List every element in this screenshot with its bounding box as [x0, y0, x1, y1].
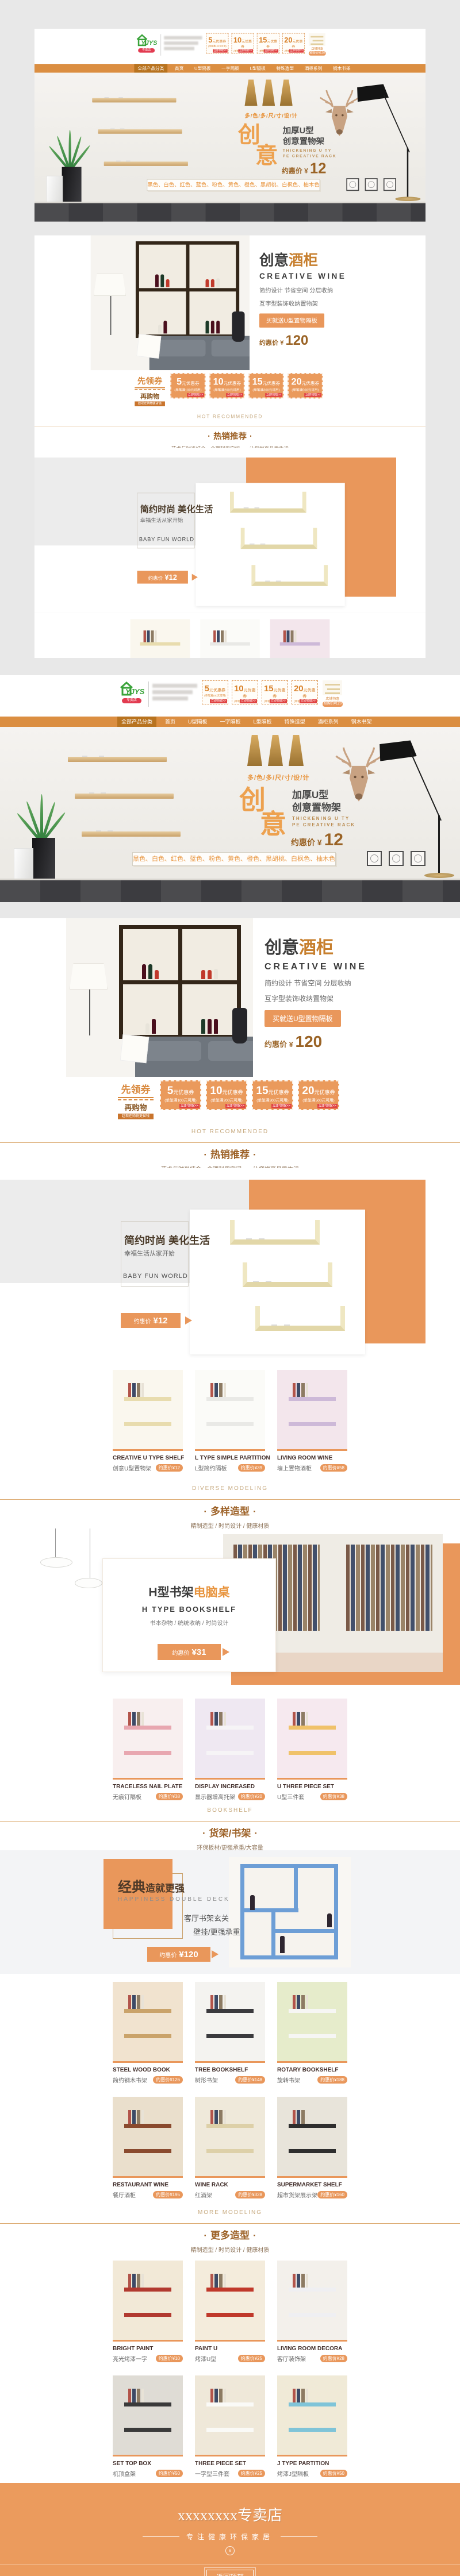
strip-coupon-10[interactable]: 10元优惠券 (单笔满200元可用) 立即领取>>	[209, 373, 244, 398]
strip-coupon-5[interactable]: 5元优惠券 (单笔满100元可用) 立即领取>>	[170, 373, 205, 398]
nav-l-shelf[interactable]: L型隔板	[254, 717, 272, 727]
nav-steel-wood[interactable]: 钢木书架	[351, 717, 372, 727]
nav-u-shelf[interactable]: U型隔板	[194, 64, 210, 72]
classic-price-button[interactable]: 约惠价¥120	[147, 1947, 210, 1962]
feature-product-card	[196, 483, 345, 606]
coupon-lead: 先领券 再购物 趁现在购物更省钱	[118, 1081, 154, 1119]
heading-bookshelf: BOOKSHELF 货架/书架 环保板材/更强承重/大容量	[0, 1801, 460, 1850]
product-card[interactable]: CREATIVE U TYPE SHELF 创意U型置物架约惠价¥12	[113, 1370, 183, 1480]
classic-title: 经典造就更强	[118, 1876, 185, 1896]
banner-big-char-2: 意	[260, 811, 286, 837]
hero-banner: 多/色/多/尺/寸/设/计 创 意 加厚U型创意置物架 THICKENING U…	[0, 727, 460, 902]
svg-text:YJYS: YJYS	[125, 687, 145, 696]
product-card[interactable]: ROTARY BOOKSHELF 旋转书架约惠价¥188	[277, 1982, 347, 2089]
main-nav: 全部产品分类 首页 U型隔板 一字隔板 L型隔板 特殊造型 酒柜系列 钢木书架	[0, 717, 460, 727]
price-badge: 约惠价¥39	[238, 1464, 265, 1472]
price-badge: 约惠价¥20	[238, 1793, 265, 1800]
section-gap	[0, 902, 460, 918]
arrow-icon	[192, 574, 198, 581]
product-card[interactable]: CREATIVE U TYPE SHELF 创意U型置物架约惠价¥12	[131, 619, 190, 658]
nav-special-shape[interactable]: 特殊造型	[285, 717, 305, 727]
floor-lamp-icon	[378, 737, 453, 881]
classic-line-1: 客厅书架玄关	[184, 1912, 229, 1923]
product-row-1: CREATIVE U TYPE SHELF 创意U型置物架约惠价¥12 L TY…	[0, 1362, 460, 1480]
pendant-lamp-icon	[268, 735, 283, 766]
product-card[interactable]: L TYPE SIMPLE PARTITION L型简约隔板约惠价¥39	[195, 1370, 265, 1480]
product-card[interactable]: TREE BOOKSHELF 树形书架约惠价¥148	[195, 1982, 265, 2089]
floor-lamp-icon	[356, 82, 420, 204]
pendant-lamp-icon	[262, 79, 275, 106]
header-coupon-20[interactable]: 20元优惠券 (单笔满500元可用) 立即领取>>	[292, 680, 318, 704]
coupon-lead: 先领券 再购物 趁现在购物更省钱	[135, 374, 165, 406]
wood-floor-decor	[0, 879, 460, 902]
wine-feature-1: 简约设计 节省空间 分层收纳	[264, 978, 367, 988]
product-image	[200, 619, 260, 658]
feature-simple-fashion: 简约时尚 美化生活 幸福生活从家开始 BABY FUN WORLD 约惠价¥12	[34, 448, 425, 612]
product-row-5: BRIGHT PAINT 亮光烤漆一字约惠价¥10 PAINT U 烤漆U型约惠…	[0, 2252, 460, 2367]
product-card[interactable]: LIVING ROOM WINE 墙上置物酒柜约惠价¥58	[270, 619, 330, 658]
plant-decor	[40, 132, 103, 205]
product-image	[131, 619, 190, 658]
wine-section: 创意酒柜 CREATIVE WINE 简约设计 节省空间 分层收纳 互字型装饰收…	[0, 918, 460, 1077]
wine-feature-2: 互字型装饰收纳置物架	[264, 994, 367, 1003]
nav-straight-shelf[interactable]: 一字隔板	[221, 64, 239, 72]
nav-all-categories[interactable]: 全部产品分类	[117, 717, 156, 727]
product-row-4: RESTAURANT WINE 餐厅酒柜约惠价¥195 WINE RACK 红酒…	[0, 2089, 460, 2204]
h-bookshelf-card: H型书架电脑桌 H TYPE BOOKSHELF 书本杂物 / 统统收纳 / 时…	[102, 1558, 276, 1672]
price-badge: 约惠价¥50	[320, 2470, 347, 2477]
price-badge: 约惠价¥50	[156, 2470, 183, 2477]
promo-caption: 店铺特惠	[323, 696, 343, 701]
product-card[interactable]: LIVING ROOM DECORA 客厅装饰架约惠价¥28	[277, 2261, 347, 2367]
arrow-icon	[223, 1648, 229, 1656]
banner-shelf-decor	[68, 738, 167, 762]
product-image	[113, 1699, 183, 1780]
feature-price-button[interactable]: 约惠价¥12	[137, 571, 188, 584]
price-badge: 约惠价¥195	[153, 2191, 183, 2198]
store-logo[interactable]: YJYS 专卖店	[134, 33, 159, 53]
strip-coupon-20[interactable]: 20元优惠券 (单笔满500元可用) 立即领取>>	[287, 373, 323, 398]
feature-product-card	[190, 1210, 365, 1354]
product-card[interactable]: PAINT U 烤漆U型约惠价¥25	[195, 2261, 265, 2367]
hero-banner: 多/色/多/尺/寸/设/计 创 意 加厚U型创意置物架 THICKENING U…	[34, 73, 425, 222]
banner-shelf-decor	[82, 813, 181, 837]
price-badge: 约惠价¥38	[156, 1793, 183, 1800]
product-image	[195, 2375, 265, 2456]
site-header: YJYS 专卖店 5元优惠券 (单笔满100元可用) 立即领取>> 10元优惠券…	[0, 675, 460, 717]
pendant-lamp-icon	[247, 735, 262, 766]
divider	[148, 681, 149, 707]
logo-tag: 专卖店	[122, 698, 141, 703]
plant-decor	[6, 796, 80, 883]
section-gap	[34, 222, 425, 236]
product-image	[113, 2375, 183, 2456]
price-badge: 约惠价¥328	[235, 2191, 265, 2198]
feature-price-button[interactable]: 约惠价¥12	[121, 1313, 181, 1328]
banner-shelf-decor	[98, 114, 182, 134]
product-row-3: STEEL WOOD BOOK 简约钢木书架约惠价¥126 TREE BOOKS…	[0, 1974, 460, 2089]
product-image	[277, 1982, 347, 2063]
page-preview-copy: YJYS 专卖店 5元优惠券 (单笔满100元可用) 立即领取>> 10元优惠券…	[34, 29, 425, 658]
product-card[interactable]: J TYPE PARTITION 烤漆J型隔板约惠价¥50	[277, 2375, 347, 2483]
product-image	[195, 2097, 265, 2178]
store-name: xxxxxxxx专卖店	[0, 2483, 460, 2525]
price-badge: 约惠价¥28	[320, 2355, 347, 2362]
product-image	[113, 1982, 183, 2063]
product-card[interactable]: RESTAURANT WINE 餐厅酒柜约惠价¥195	[113, 2097, 183, 2204]
banner-multi-text: 多/色/多/尺/寸/设/计	[245, 112, 298, 120]
wine-title-en: CREATIVE WINE	[259, 272, 346, 281]
header-coupon-5[interactable]: 5元优惠券 (单笔满100元可用) 立即领取>>	[202, 680, 228, 704]
product-row-1: CREATIVE U TYPE SHELF 创意U型置物架约惠价¥12 L TY…	[34, 613, 425, 658]
nav-wine-series[interactable]: 酒柜系列	[318, 717, 339, 727]
wine-gift-button[interactable]: 买就送U型置物隔板	[259, 314, 324, 328]
page-footer: xxxxxxxx专卖店 专注健康环保家居 返回顶部	[0, 2483, 460, 2576]
strip-coupon-15[interactable]: 15元优惠券 (单笔满300元可用) 立即领取>>	[248, 373, 283, 398]
wine-price: 约惠价 ¥ 120	[259, 333, 346, 348]
feature-title: 简约时尚 美化生活	[140, 503, 213, 515]
header-coupons: 5元优惠券 (单笔满100元可用) 立即领取>> 10元优惠券 (单笔满200元…	[206, 33, 305, 54]
site-header: YJYS 专卖店 5元优惠券 (单笔满100元可用) 立即领取>> 10元优惠券…	[34, 29, 425, 64]
product-card[interactable]: STEEL WOOD BOOK 简约钢木书架约惠价¥126	[113, 1982, 183, 2089]
classic-title-en: HAPPINESS DOUBLE DECK	[118, 1896, 230, 1903]
feature-subtitle: 幸福生活从家开始	[124, 1249, 175, 1258]
product-card[interactable]: TRACELESS NAIL PLATE 无痕钉隔板约惠价¥38	[113, 1699, 183, 1801]
h-price-button[interactable]: 约惠价¥31	[158, 1644, 221, 1660]
price-badge: 约惠价¥10	[156, 2355, 183, 2362]
wine-title: 创意酒柜	[259, 248, 346, 269]
price-badge: 约惠价¥25	[238, 2355, 265, 2362]
nav-all-categories[interactable]: 全部产品分类	[134, 64, 167, 72]
product-card[interactable]: U THREE PIECE SET U型三件套约惠价¥38	[277, 1699, 347, 1801]
nav-home[interactable]: 首页	[165, 717, 175, 727]
house-logo-icon: YJYS	[117, 680, 147, 698]
product-image	[277, 2261, 347, 2342]
price-badge: 约惠价¥38	[320, 1793, 347, 1800]
feature-title: 简约时尚 美化生活	[124, 1233, 210, 1247]
heading-hot-recommended: HOT RECOMMENDED 热销推荐 艺术与时尚结合，合理利用空间——让您悦…	[0, 1123, 460, 1168]
product-image	[270, 619, 330, 658]
nav-steel-wood[interactable]: 钢木书架	[333, 64, 351, 72]
nav-wine-series[interactable]: 酒柜系列	[305, 64, 323, 72]
product-image	[113, 2097, 183, 2178]
wine-block: 创意酒柜 CREATIVE WINE 简约设计 节省空间 分层收纳 互字型装饰收…	[34, 236, 425, 448]
wine-title-en: CREATIVE WINE	[264, 962, 367, 972]
banner-big-char-2: 意	[255, 144, 278, 167]
product-image	[277, 1699, 347, 1780]
store-logo[interactable]: YJYS 专卖店	[117, 680, 147, 703]
feature-h-bookshelf: H型书架电脑桌 H TYPE BOOKSHELF 书本杂物 / 统统收纳 / 时…	[0, 1528, 460, 1695]
wood-floor-decor	[34, 202, 425, 222]
header-coupon-10[interactable]: 10元优惠券 (单笔满200元可用) 立即领取>>	[231, 33, 254, 54]
nav-l-shelf[interactable]: L型隔板	[250, 64, 265, 72]
wine-title: 创意酒柜	[264, 933, 367, 958]
house-logo-icon: YJYS	[134, 33, 159, 48]
banner-subtitle-en: THICKENING U TYPE CREATIVE RACK	[292, 815, 355, 828]
product-card[interactable]: WINE RACK 红酒架约惠价¥328	[195, 2097, 265, 2204]
product-image	[113, 1370, 183, 1451]
product-card[interactable]: L TYPE SIMPLE PARTITION L型简约隔板约惠价¥39	[200, 619, 260, 658]
classic-line-2: 壁挂/更强承重	[193, 1926, 240, 1937]
wine-feature-2: 互字型装饰收纳置物架	[259, 299, 346, 307]
product-image	[195, 1982, 265, 2063]
coupon-strip: 先领券 再购物 趁现在购物更省钱 5元优惠券 (单笔满100元可用) 立即领取>…	[34, 370, 425, 409]
product-row-6: SET TOP BOX 机顶盒架约惠价¥50 THREE PIECE SET 一…	[0, 2367, 460, 2483]
promo-price: 抢购价¥120	[309, 51, 326, 56]
promo-caption: 店铺特惠	[309, 47, 326, 51]
divider	[160, 34, 161, 55]
product-card[interactable]: BRIGHT PAINT 亮光烤漆一字约惠价¥10	[113, 2261, 183, 2367]
banner-multi-text: 多/色/多/尺/寸/设/计	[247, 773, 309, 782]
design-canvas: YJYS 专卖店 5元优惠券 (单笔满100元可用) 立即领取>> 10元优惠券…	[0, 0, 460, 2576]
header-coupon-15[interactable]: 15元优惠券 (单笔满300元可用) 立即领取>>	[257, 33, 279, 54]
header-coupon-10[interactable]: 10元优惠券 (单笔满200元可用) 立即领取>>	[232, 680, 258, 704]
banner-price: 约惠价 ¥ 12	[291, 830, 343, 850]
feature-title-en: BABY FUN WORLD	[123, 1273, 188, 1280]
price-badge: 约惠价¥160	[317, 2191, 347, 2198]
promo-thumbnail	[323, 680, 342, 695]
price-badge: 约惠价¥12	[156, 1464, 183, 1472]
banner-colors-bar: 黑色、白色、红色、蓝色、粉色、黄色、橙色、黑胡桃、白枫色、柚木色	[132, 852, 336, 866]
feature-subtitle: 幸福生活从家开始	[140, 516, 183, 524]
feature-classic-quality: 经典造就更强 HAPPINESS DOUBLE DECK 客厅书架玄关 壁挂/更…	[0, 1850, 460, 1974]
banner-colors-bar: 黑色、白色、红色、蓝色、粉色、黄色、橙色、黑胡桃、白枫色、柚木色	[147, 179, 320, 191]
product-image	[195, 1699, 265, 1780]
promo-price: 抢购价¥120	[323, 702, 343, 707]
banner-shelf-decor	[104, 146, 188, 166]
wine-feature-1: 简约设计 节省空间 分层收纳	[259, 286, 346, 294]
main-nav: 全部产品分类 首页 U型隔板 一字隔板 L型隔板 特殊造型 酒柜系列 钢木书架	[34, 64, 425, 72]
feature-title-en: BABY FUN WORLD	[139, 537, 194, 542]
store-description-placeholder	[164, 33, 202, 52]
header-promo[interactable]: 店铺特惠 抢购价¥120	[323, 680, 343, 707]
header-coupon-15[interactable]: 15元优惠券 (单笔满300元可用) 立即领取>>	[262, 680, 288, 704]
header-coupon-5[interactable]: 5元优惠券 (单笔满100元可用) 立即领取>>	[206, 33, 228, 54]
product-card[interactable]: THREE PIECE SET 一字型三件套约惠价¥25	[195, 2375, 265, 2483]
nav-u-shelf[interactable]: U型隔板	[188, 717, 208, 727]
price-badge: 约惠价¥58	[320, 1464, 347, 1472]
nav-special-shape[interactable]: 特殊造型	[276, 64, 294, 72]
product-row-2: TRACELESS NAIL PLATE 无痕钉隔板约惠价¥38 DISPLAY…	[0, 1695, 460, 1801]
wine-block: 创意酒柜 CREATIVE WINE 简约设计 节省空间 分层收纳 互字型装饰收…	[0, 918, 460, 1168]
heading-diverse-modeling: DIVERSE MODELING 多样造型 精制造型 / 时尚设计 / 健康材质	[0, 1480, 460, 1528]
strip-coupon-15[interactable]: 15元优惠券 (单笔满300元可用) 立即领取>>	[252, 1080, 293, 1110]
wine-photo	[91, 236, 250, 371]
product-card[interactable]: DISPLAY INCREASED 显示器增高托架约惠价¥20	[195, 1699, 265, 1801]
product-image	[195, 1370, 265, 1451]
price-badge: 约惠价¥188	[317, 2076, 347, 2084]
pendant-lamp-icon	[40, 1528, 109, 1597]
pendant-lamp-icon	[289, 735, 304, 766]
wine-price: 约惠价 ¥ 120	[264, 1033, 367, 1051]
strip-coupon-5[interactable]: 5元优惠券 (单笔满100元可用) 立即领取>>	[160, 1080, 201, 1110]
store-slogan: 专注健康环保家居	[0, 2532, 460, 2542]
header-coupon-20[interactable]: 20元优惠券 (单笔满500元可用) 立即领取>>	[282, 33, 305, 54]
banner-subtitle-en: THICKENING U TYPE CREATIVE RACK	[283, 148, 337, 159]
price-badge: 约惠价¥126	[153, 2076, 183, 2084]
product-card[interactable]: SET TOP BOX 机顶盒架约惠价¥50	[113, 2375, 183, 2483]
page-full-copy: YJYS 专卖店 5元优惠券 (单笔满100元可用) 立即领取>> 10元优惠券…	[0, 675, 460, 2576]
strip-coupon-20[interactable]: 20元优惠券 (单笔满500元可用) 立即领取>>	[298, 1080, 339, 1110]
banner-shelf-decor	[75, 775, 174, 799]
nav-straight-shelf[interactable]: 一字隔板	[220, 717, 241, 727]
promo-thumbnail	[309, 33, 325, 46]
bulb-icon	[225, 2546, 235, 2555]
wine-gift-button[interactable]: 买就送U型置物隔板	[264, 1010, 341, 1027]
feature-simple-fashion: 简约时尚 美化生活 幸福生活从家开始 BABY FUN WORLD 约惠价¥12	[0, 1168, 460, 1362]
store-description-placeholder	[152, 680, 197, 703]
header-coupons: 5元优惠券 (单笔满100元可用) 立即领取>> 10元优惠券 (单笔满200元…	[202, 680, 318, 704]
wine-section: 创意酒柜 CREATIVE WINE 简约设计 节省空间 分层收纳 互字型装饰收…	[34, 236, 425, 371]
svg-text:YJYS: YJYS	[141, 40, 158, 47]
product-image	[277, 2375, 347, 2456]
strip-coupon-10[interactable]: 10元优惠券 (单笔满200元可用) 立即领取>>	[206, 1080, 247, 1110]
nav-home[interactable]: 首页	[175, 64, 183, 72]
heading-hot-recommended: HOT RECOMMENDED 热销推荐 艺术与时尚结合，合理利用空间——让您悦…	[34, 409, 425, 448]
wine-photo	[66, 918, 253, 1077]
product-card[interactable]: SUPERMARKET SHELF 超市货架展示架约惠价¥160	[277, 2097, 347, 2204]
product-image	[277, 1370, 347, 1451]
product-card[interactable]: LIVING ROOM WINE 墙上置物酒柜约惠价¥58	[277, 1370, 347, 1480]
product-image	[277, 2097, 347, 2178]
header-promo[interactable]: 店铺特惠 抢购价¥120	[309, 33, 326, 56]
heading-more-modeling: MORE MODELING 更多造型 精制造型 / 时尚设计 / 健康材质	[0, 2204, 460, 2252]
coupon-strip: 先领券 再购物 趁现在购物更省钱 5元优惠券 (单笔满100元可用) 立即领取>…	[0, 1077, 460, 1123]
arrow-icon	[212, 1950, 218, 1958]
pendant-lamp-icon	[280, 79, 293, 106]
product-image	[195, 2261, 265, 2342]
banner-shelf-decor	[92, 83, 176, 103]
price-badge: 约惠价¥148	[235, 2076, 265, 2084]
pendant-lamp-icon	[245, 79, 258, 106]
banner-price: 约惠价 ¥ 12	[282, 161, 326, 178]
arrow-icon	[185, 1316, 192, 1324]
product-image	[113, 2261, 183, 2342]
back-to-top-button[interactable]: 返回顶部	[206, 2570, 254, 2576]
logo-tag: 专卖店	[138, 48, 155, 53]
classic-photo	[229, 1857, 351, 1967]
price-badge: 约惠价¥25	[238, 2470, 265, 2477]
